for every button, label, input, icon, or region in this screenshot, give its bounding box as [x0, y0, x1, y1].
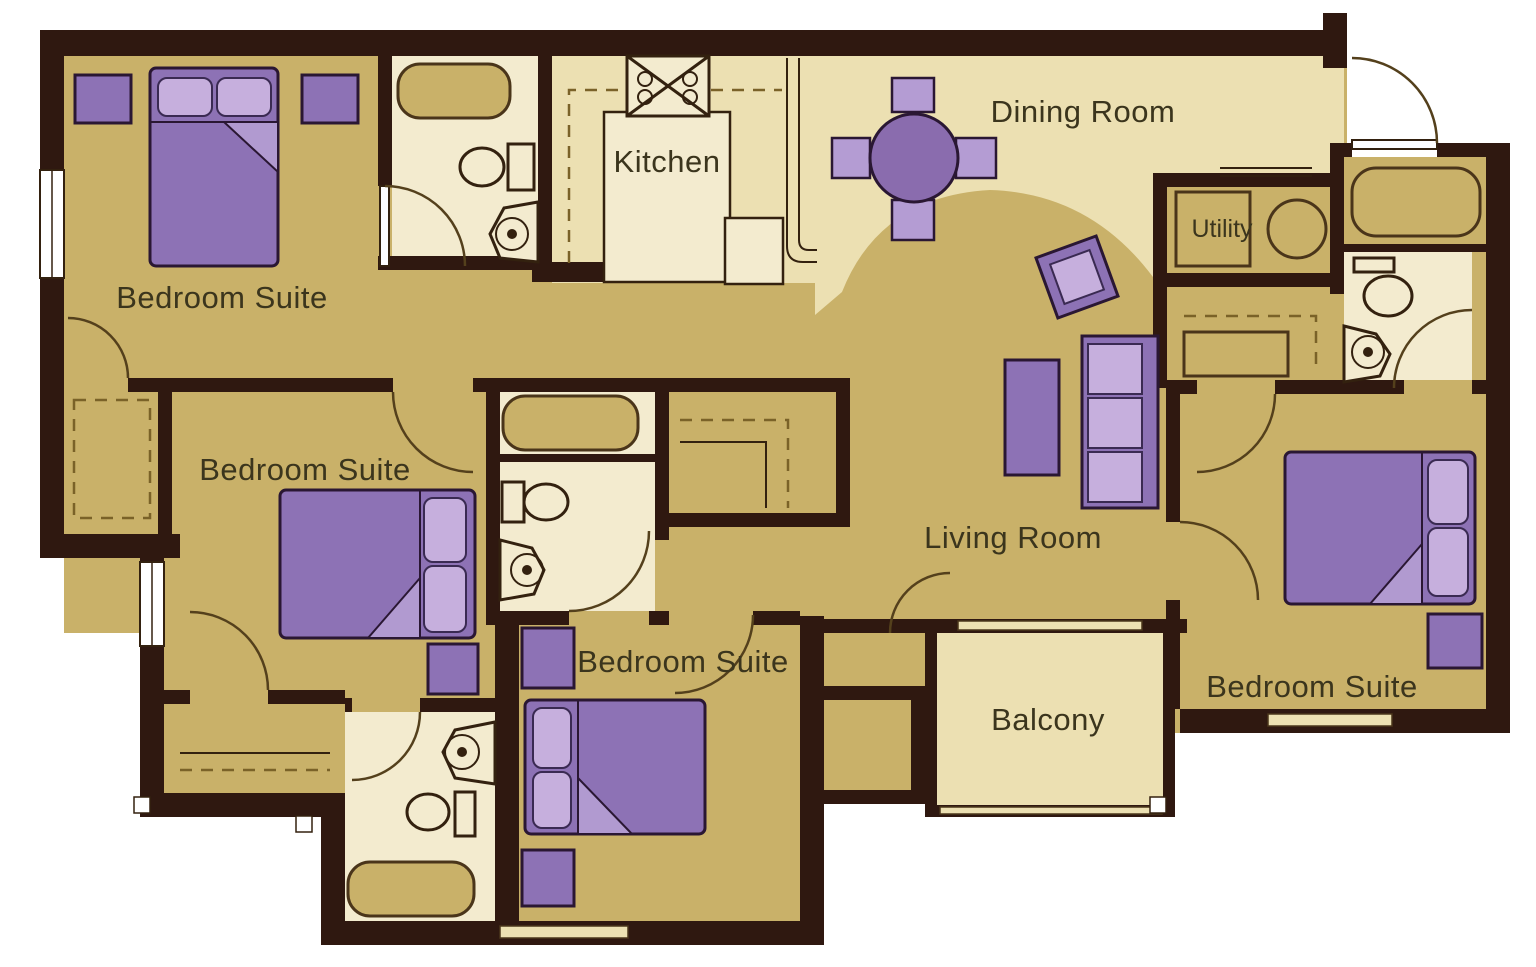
kitchen-island-icon — [604, 112, 730, 282]
dining-table-icon — [870, 114, 958, 202]
room-label-bedroom-mid-left: Bedroom Suite — [199, 452, 411, 487]
wall-segment — [268, 690, 345, 704]
nightstand-icon — [302, 75, 358, 123]
wall-segment — [925, 633, 937, 809]
wall-segment — [824, 790, 935, 804]
wall-segment — [1167, 380, 1197, 394]
dryer-icon — [1268, 200, 1326, 258]
wall-segment — [345, 698, 352, 712]
wall-segment — [40, 30, 64, 558]
sink-icon — [457, 747, 467, 757]
wall-segment — [378, 56, 392, 186]
pillow-icon — [158, 78, 212, 116]
wall-segment — [1323, 13, 1347, 68]
door-leaf — [380, 186, 389, 266]
toilet-icon — [455, 792, 475, 836]
wall-segment — [40, 30, 1347, 56]
wall-segment — [911, 686, 925, 804]
wall-segment — [158, 392, 172, 534]
window-icon — [500, 926, 628, 938]
wall-segment — [1344, 244, 1486, 252]
pillow-icon — [533, 708, 571, 768]
wall-segment — [669, 513, 850, 527]
sink-icon — [507, 229, 517, 239]
wall-segment — [1330, 143, 1344, 294]
pillow-icon — [1428, 460, 1468, 524]
wall-segment — [1472, 380, 1486, 394]
closet-shelf — [1184, 332, 1288, 376]
toilet-icon — [407, 794, 449, 830]
room-label-bedroom-top-left: Bedroom Suite — [116, 280, 328, 315]
wall-segment — [1275, 380, 1330, 394]
floor-plan: Bedroom Suite Kitchen Dining Room Utilit… — [0, 0, 1536, 967]
nightstand-icon — [1428, 614, 1482, 668]
bathtub-icon — [1352, 168, 1480, 236]
sofa-cushion — [1088, 344, 1142, 394]
nightstand-icon — [428, 644, 478, 694]
sink-icon — [1363, 347, 1373, 357]
chair-icon — [892, 200, 934, 240]
wall-corner-notch — [134, 797, 150, 813]
toilet-icon — [502, 482, 524, 522]
floor-plan-canvas: Bedroom Suite Kitchen Dining Room Utilit… — [0, 0, 1536, 967]
wall-segment — [486, 392, 500, 625]
room-label-bedroom-right: Bedroom Suite — [1206, 669, 1418, 704]
wall-segment — [753, 611, 800, 625]
sofa-cushion — [1088, 398, 1142, 448]
wall-segment — [1153, 173, 1344, 187]
room-label-balcony: Balcony — [991, 702, 1105, 737]
sliding-door-icon — [958, 621, 1142, 630]
counter-icon — [725, 218, 783, 284]
wall-segment — [1486, 143, 1510, 733]
room-label-utility: Utility — [1191, 215, 1253, 243]
wall-segment — [1153, 273, 1344, 287]
pillow-icon — [533, 772, 571, 828]
nightstand-icon — [75, 75, 131, 123]
wall-segment — [495, 611, 519, 945]
wall-segment — [800, 616, 824, 945]
wall-corner-notch — [1150, 797, 1166, 813]
room-label-bedroom-bottom: Bedroom Suite — [577, 644, 789, 679]
wall-segment — [140, 793, 345, 817]
stove-icon — [627, 56, 709, 116]
pillow-icon — [217, 78, 271, 116]
wall-segment — [649, 611, 669, 625]
wall-segment — [420, 698, 495, 712]
chair-icon — [892, 78, 934, 112]
chair-icon — [832, 138, 870, 178]
wall-segment — [538, 56, 552, 262]
nightstand-icon — [522, 628, 574, 688]
wall-segment — [473, 378, 850, 392]
toilet-icon — [460, 148, 504, 186]
bathtub-icon — [348, 862, 474, 916]
chair-icon — [956, 138, 996, 178]
room-label-dining-room: Dining Room — [991, 94, 1176, 129]
door-leaf — [1352, 140, 1437, 149]
room-label-living-room: Living Room — [924, 520, 1102, 555]
nightstand-icon — [522, 850, 574, 906]
wall-segment — [164, 690, 190, 704]
window-icon — [940, 807, 1162, 814]
wall-segment — [1166, 388, 1180, 522]
wall-segment — [1166, 600, 1180, 709]
wall-segment — [655, 392, 669, 540]
pillow-icon — [424, 498, 466, 562]
wall-segment — [500, 454, 655, 462]
wall-segment — [836, 392, 850, 527]
window-icon — [1268, 714, 1392, 726]
door-swing-icon — [1352, 58, 1437, 143]
pillow-icon — [1428, 528, 1468, 596]
pillow-icon — [424, 566, 466, 632]
coffee-table-icon — [1005, 360, 1059, 475]
toilet-icon — [524, 484, 568, 520]
wall-corner-notch — [296, 816, 312, 832]
wall-segment — [532, 262, 612, 282]
sofa-cushion — [1088, 452, 1142, 502]
room-label-kitchen: Kitchen — [614, 144, 721, 179]
toilet-icon — [1364, 276, 1412, 316]
bathtub-icon — [398, 64, 510, 118]
sink-icon — [522, 565, 532, 575]
toilet-icon — [1354, 258, 1394, 272]
wall-segment — [128, 378, 393, 392]
toilet-icon — [508, 144, 534, 190]
bathtub-icon — [503, 396, 638, 450]
